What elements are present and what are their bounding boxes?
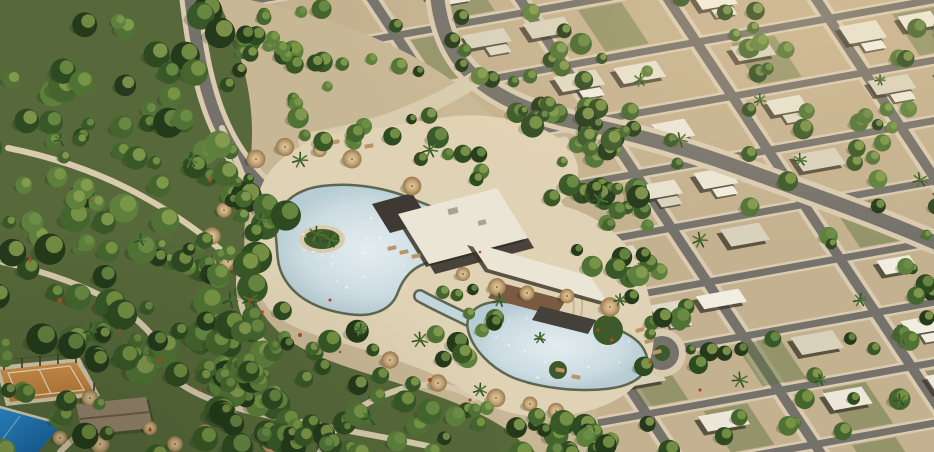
vignette-overlay [0, 0, 934, 452]
aerial-resort-render [0, 0, 934, 452]
resort-scene-canvas [0, 0, 934, 452]
